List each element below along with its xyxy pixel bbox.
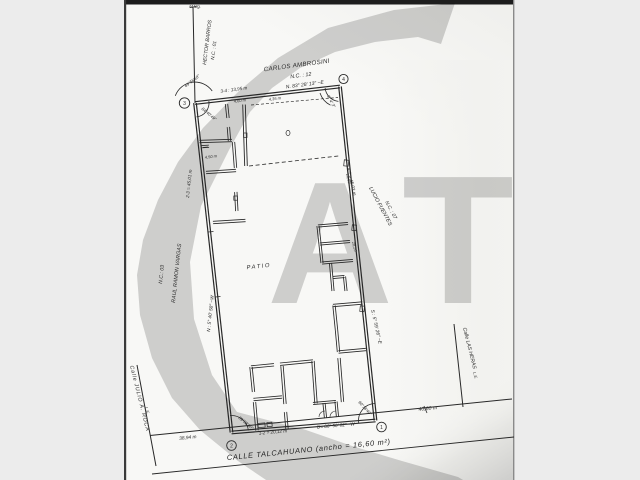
svg-text:2: 2 [230,443,233,449]
svg-text:1: 1 [380,425,383,431]
svg-text:T: T [402,137,514,342]
svg-text:4: 4 [342,77,345,83]
svg-text:M.Mg.: M.Mg. [189,4,201,9]
svg-text:3: 3 [183,101,186,107]
